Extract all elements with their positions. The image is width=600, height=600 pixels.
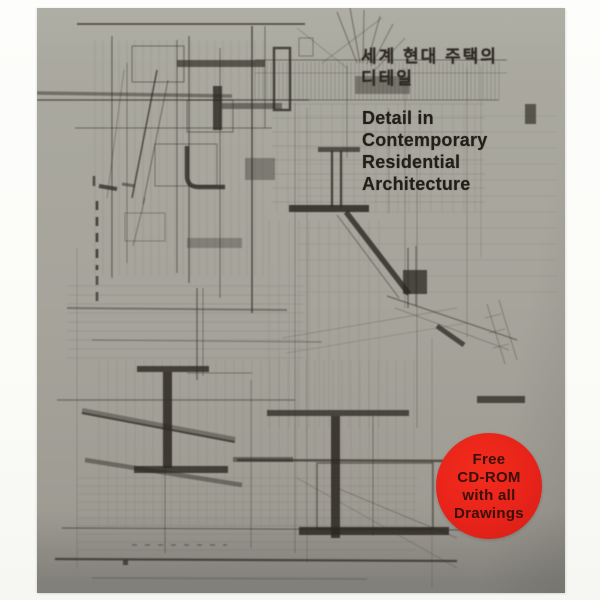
book-cover: 세계 현대 주택의 디테일 Detail in Contemporary Res… [37,8,565,593]
english-title-line-4: Architecture [362,173,487,195]
badge-line-2: CD-ROM [436,469,542,487]
cdrom-badge: Free CD-ROM with all Drawings [436,433,542,539]
korean-title: 세계 현대 주택의 디테일 [361,46,498,90]
korean-title-line-2: 디테일 [361,68,498,90]
english-title-line-2: Contemporary [362,129,487,151]
english-title-line-3: Residential [362,151,487,173]
page-background: 세계 현대 주택의 디테일 Detail in Contemporary Res… [0,0,600,600]
english-title: Detail in Contemporary Residential Archi… [362,107,487,195]
badge-line-1: Free [436,451,542,469]
badge-line-3: with all [436,487,542,505]
badge-line-4: Drawings [436,505,542,523]
korean-title-line-1: 세계 현대 주택의 [361,46,498,68]
english-title-line-1: Detail in [362,107,487,129]
